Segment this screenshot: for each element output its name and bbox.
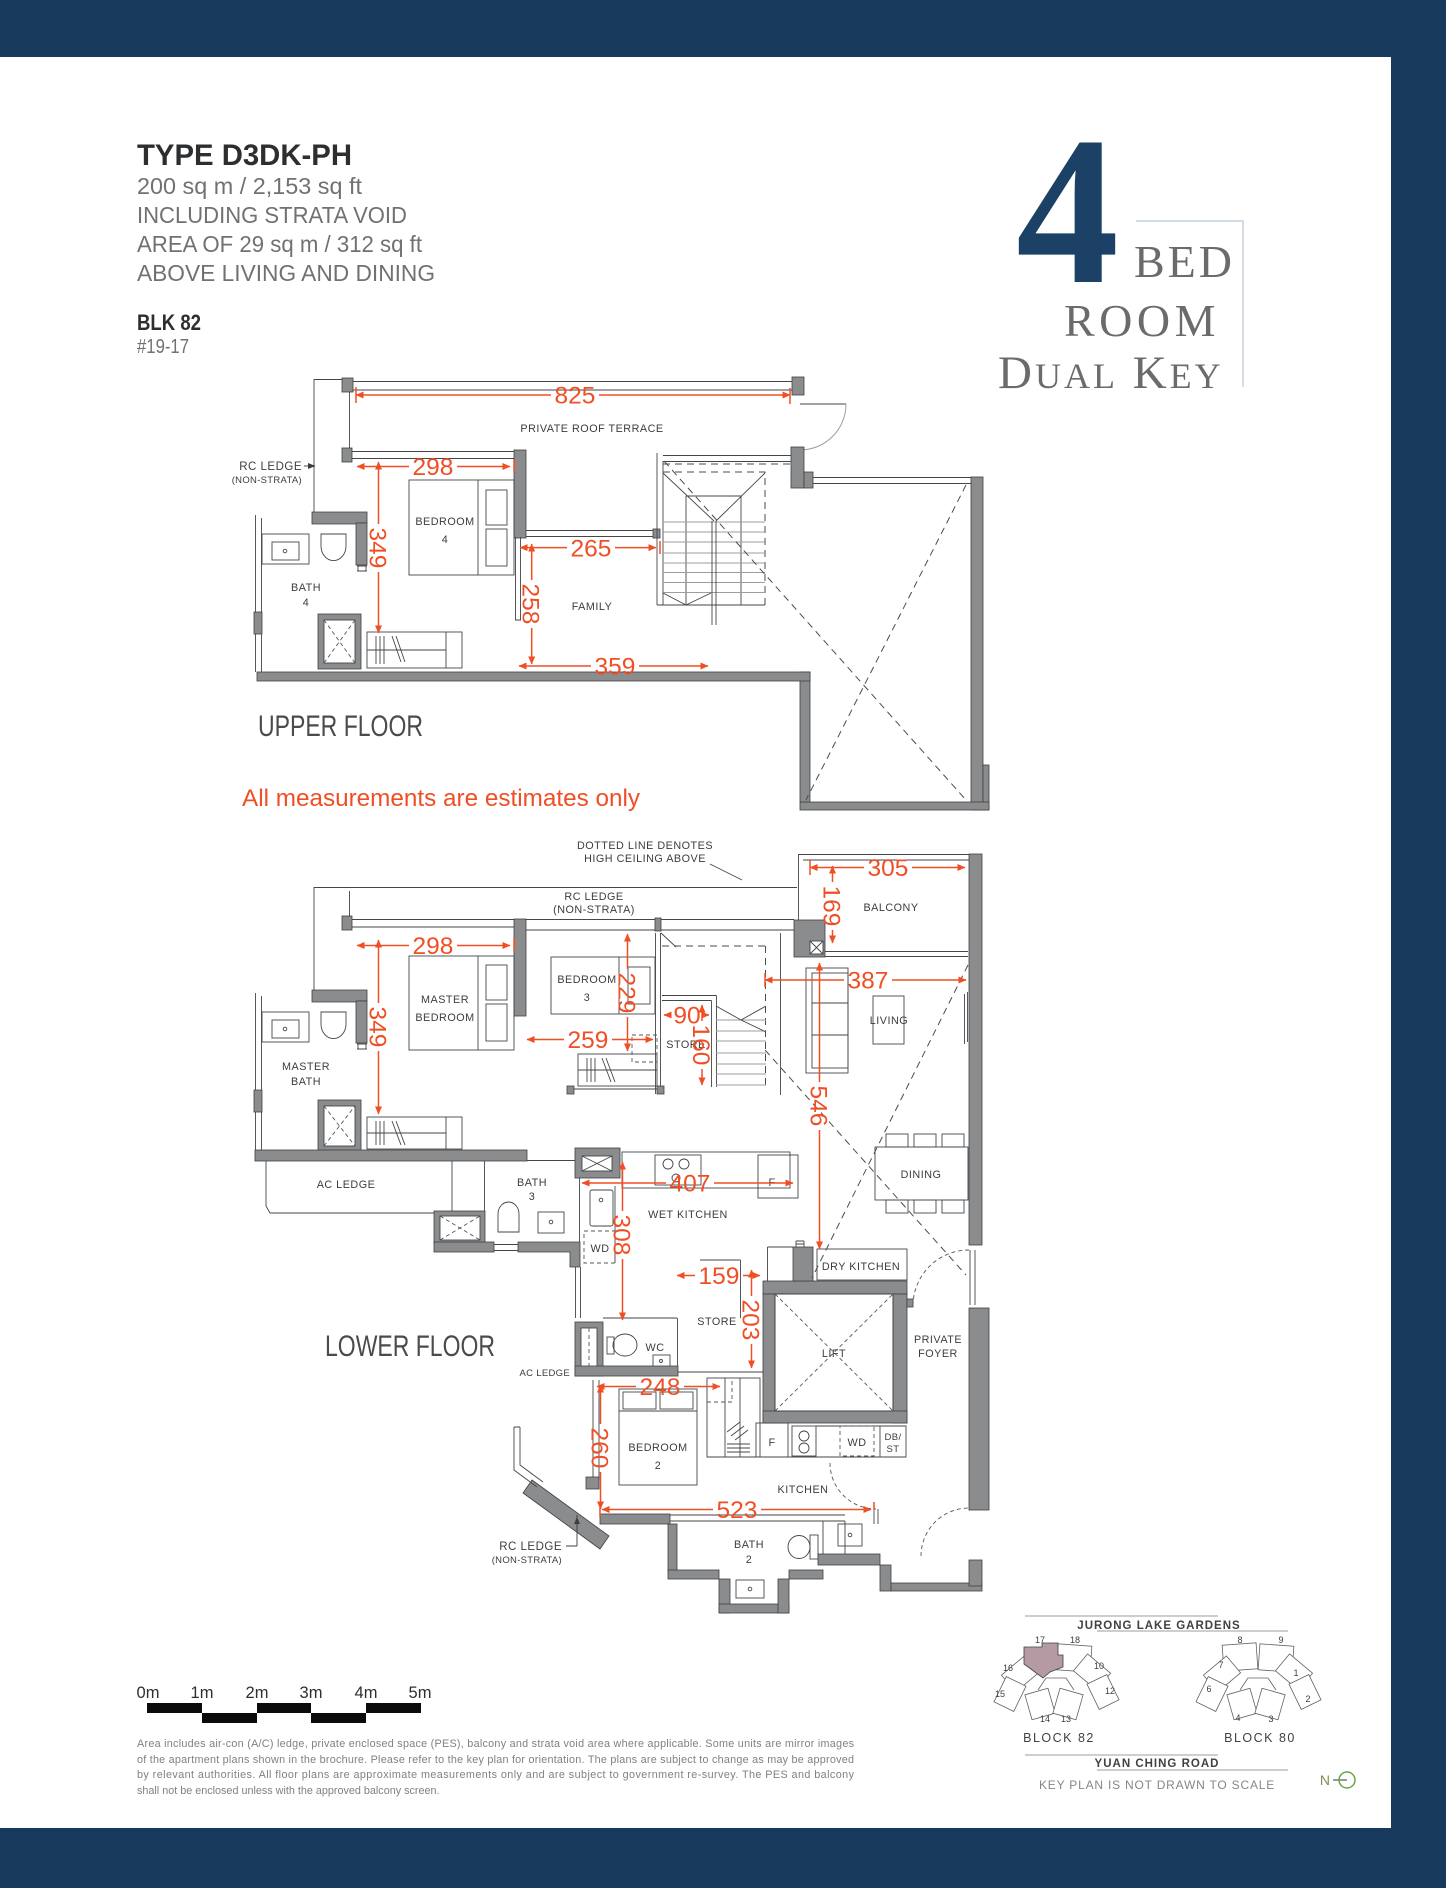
svg-text:WD: WD (848, 1437, 867, 1449)
svg-text:KITCHEN: KITCHEN (778, 1484, 829, 1496)
svg-text:RC LEDGE: RC LEDGE (564, 891, 623, 903)
svg-text:BEDROOM: BEDROOM (415, 516, 474, 528)
svg-text:AC LEDGE: AC LEDGE (317, 1179, 376, 1191)
svg-text:ST: ST (887, 1444, 900, 1455)
svg-text:159: 159 (699, 1263, 740, 1290)
svg-text:DOTTED LINE DENOTES: DOTTED LINE DENOTES (577, 840, 713, 852)
svg-text:AREA OF 29 sq m / 312 sq ft: AREA OF 29 sq m / 312 sq ft (137, 231, 422, 257)
svg-text:265: 265 (571, 535, 612, 562)
svg-text:N: N (1320, 1772, 1330, 1788)
svg-text:DINING: DINING (901, 1169, 942, 1181)
svg-text:ROOM: ROOM (1064, 295, 1220, 346)
svg-text:4: 4 (442, 534, 449, 546)
svg-text:(NON-STRATA): (NON-STRATA) (553, 904, 635, 916)
svg-text:STORE: STORE (697, 1316, 737, 1328)
svg-text:BATH: BATH (291, 1076, 321, 1088)
svg-text:160: 160 (687, 1025, 714, 1066)
svg-text:All measurements are estimates: All measurements are estimates only (242, 785, 641, 812)
svg-text:9: 9 (1278, 1635, 1283, 1645)
svg-text:15: 15 (995, 1689, 1005, 1699)
svg-text:523: 523 (717, 1497, 758, 1524)
svg-text:387: 387 (848, 968, 889, 995)
svg-text:260: 260 (585, 1428, 612, 1469)
svg-text:BLK 82: BLK 82 (137, 310, 201, 335)
svg-text:6: 6 (1206, 1684, 1211, 1694)
svg-text:259: 259 (568, 1027, 609, 1054)
svg-text:12: 12 (1105, 1686, 1115, 1696)
svg-text:#19-17: #19-17 (137, 336, 189, 358)
svg-text:MASTER: MASTER (421, 994, 469, 1006)
svg-text:YUAN CHING ROAD: YUAN CHING ROAD (1095, 1758, 1220, 1770)
svg-text:BALCONY: BALCONY (863, 902, 918, 914)
svg-text:AC LEDGE: AC LEDGE (520, 1368, 570, 1379)
svg-text:PRIVATE ROOF TERRACE: PRIVATE ROOF TERRACE (520, 423, 663, 435)
svg-text:FAMILY: FAMILY (572, 601, 613, 613)
svg-text:BED: BED (1134, 236, 1235, 287)
svg-text:by relevant authorities. All f: by relevant authorities. All floor plans… (137, 1769, 855, 1781)
svg-text:3: 3 (529, 1191, 536, 1203)
svg-text:7: 7 (1218, 1660, 1223, 1670)
svg-text:UPPER FLOOR: UPPER FLOOR (258, 710, 423, 743)
svg-text:349: 349 (363, 1007, 390, 1048)
svg-text:(NON-STRATA): (NON-STRATA) (232, 475, 302, 486)
svg-text:INCLUDING STRATA VOID: INCLUDING STRATA VOID (137, 202, 407, 228)
svg-text:1: 1 (1293, 1668, 1298, 1678)
svg-text:4: 4 (1016, 93, 1119, 328)
svg-text:2: 2 (1305, 1694, 1310, 1704)
svg-text:3m: 3m (300, 1684, 323, 1702)
svg-text:WD: WD (591, 1243, 610, 1255)
svg-text:HIGH CEILING ABOVE: HIGH CEILING ABOVE (584, 853, 706, 865)
svg-text:2m: 2m (246, 1684, 269, 1702)
svg-text:WET KITCHEN: WET KITCHEN (648, 1209, 728, 1221)
svg-text:13: 13 (1061, 1714, 1071, 1724)
svg-text:of the apartment plans shown i: of the apartment plans shown in the broc… (137, 1754, 854, 1766)
svg-text:10: 10 (1094, 1661, 1104, 1671)
svg-text:FOYER: FOYER (918, 1348, 958, 1360)
svg-text:4: 4 (1235, 1713, 1240, 1723)
svg-text:258: 258 (517, 584, 544, 625)
svg-text:3: 3 (584, 992, 591, 1004)
svg-text:359: 359 (595, 654, 636, 681)
svg-text:2: 2 (655, 1460, 662, 1472)
svg-text:BEDROOM: BEDROOM (415, 1012, 474, 1024)
svg-text:4: 4 (303, 597, 310, 609)
svg-text:407: 407 (670, 1171, 711, 1198)
svg-text:8: 8 (1237, 1635, 1242, 1645)
svg-text:MASTER: MASTER (282, 1061, 330, 1073)
svg-text:5m: 5m (409, 1684, 432, 1702)
svg-text:DRY KITCHEN: DRY KITCHEN (822, 1261, 900, 1273)
svg-text:RC LEDGE: RC LEDGE (499, 1541, 562, 1553)
svg-text:BEDROOM: BEDROOM (557, 974, 616, 986)
svg-text:F: F (768, 1437, 775, 1449)
svg-text:KEY PLAN IS NOT DRAWN TO SCALE: KEY PLAN IS NOT DRAWN TO SCALE (1039, 1778, 1275, 1792)
svg-text:TYPE D3DK-PH: TYPE D3DK-PH (137, 139, 352, 172)
svg-text:BATH: BATH (291, 582, 321, 594)
svg-text:LOWER FLOOR: LOWER FLOOR (325, 1330, 495, 1363)
svg-text:248: 248 (640, 1374, 681, 1401)
svg-text:14: 14 (1040, 1714, 1050, 1724)
svg-text:1m: 1m (191, 1684, 214, 1702)
svg-text:BATH: BATH (734, 1539, 764, 1551)
svg-text:ABOVE LIVING AND DINING: ABOVE LIVING AND DINING (137, 260, 435, 286)
svg-text:305: 305 (868, 855, 909, 882)
svg-text:3: 3 (1268, 1714, 1273, 1724)
svg-text:16: 16 (1003, 1663, 1013, 1673)
svg-text:308: 308 (607, 1215, 634, 1256)
svg-text:LIFT: LIFT (822, 1348, 846, 1360)
svg-text:RC LEDGE: RC LEDGE (239, 461, 302, 473)
svg-text:DB/: DB/ (884, 1432, 901, 1443)
svg-text:18: 18 (1070, 1635, 1080, 1645)
svg-text:BATH: BATH (517, 1177, 547, 1189)
svg-text:169: 169 (817, 886, 844, 927)
svg-text:Area includes air-con (A/C) le: Area includes air-con (A/C) ledge, priva… (137, 1738, 855, 1750)
svg-text:BLOCK 82: BLOCK 82 (1023, 1731, 1095, 1745)
svg-text:(NON-STRATA): (NON-STRATA) (492, 1555, 562, 1566)
svg-text:0m: 0m (137, 1684, 160, 1702)
svg-text:shall not be enclosed unless w: shall not be enclosed unless with the ap… (137, 1785, 440, 1797)
svg-text:PRIVATE: PRIVATE (914, 1334, 962, 1346)
svg-text:BLOCK 80: BLOCK 80 (1224, 1731, 1296, 1745)
svg-text:546: 546 (804, 1086, 831, 1127)
svg-text:298: 298 (413, 933, 454, 960)
svg-text:200 sq m / 2,153 sq ft: 200 sq m / 2,153 sq ft (137, 173, 362, 199)
svg-text:JURONG LAKE GARDENS: JURONG LAKE GARDENS (1077, 1620, 1240, 1632)
svg-text:298: 298 (413, 454, 454, 481)
svg-text:229: 229 (612, 973, 639, 1014)
svg-text:17: 17 (1035, 1635, 1045, 1645)
svg-text:4m: 4m (355, 1684, 378, 1702)
svg-text:203: 203 (736, 1300, 763, 1341)
svg-text:WC: WC (646, 1342, 665, 1354)
svg-text:BEDROOM: BEDROOM (628, 1442, 687, 1454)
svg-text:LIVING: LIVING (870, 1015, 908, 1027)
svg-text:349: 349 (363, 528, 390, 569)
svg-text:2: 2 (746, 1554, 753, 1566)
svg-text:825: 825 (555, 383, 596, 410)
